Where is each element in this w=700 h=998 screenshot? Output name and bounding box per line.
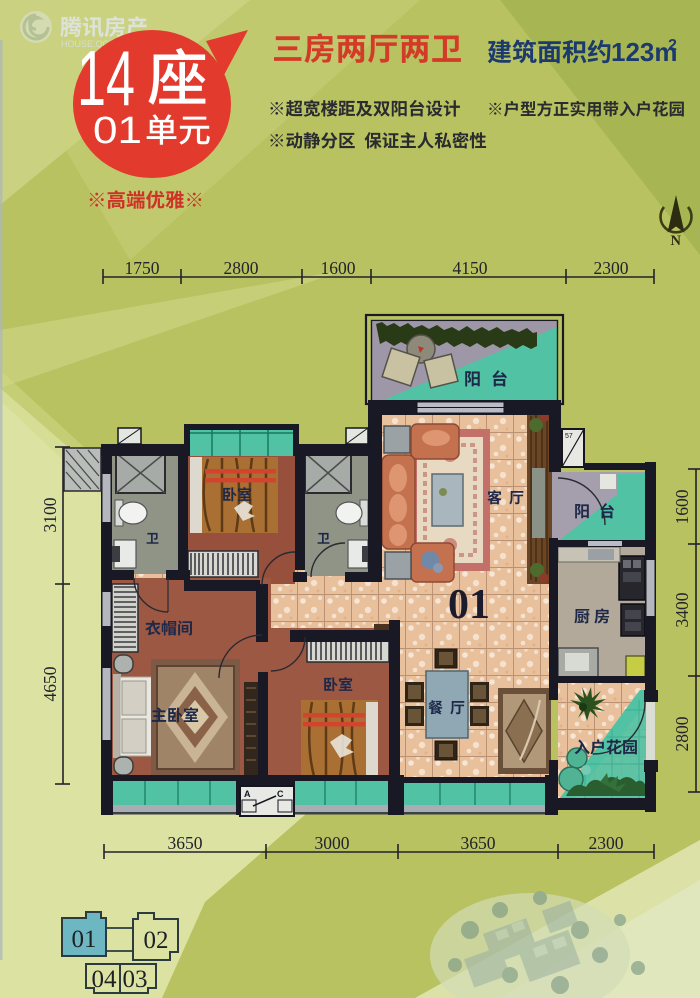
svg-text:01: 01 — [448, 582, 490, 628]
svg-text:04: 04 — [92, 966, 118, 993]
svg-text:4650: 4650 — [40, 666, 60, 701]
svg-text:01: 01 — [93, 110, 142, 152]
svg-text:A: A — [244, 789, 251, 799]
svg-text:3650: 3650 — [168, 833, 203, 853]
svg-text:2: 2 — [668, 37, 677, 54]
svg-text:C: C — [277, 789, 284, 799]
svg-text:3650: 3650 — [461, 833, 496, 853]
svg-text:14: 14 — [77, 34, 135, 122]
svg-text:2800: 2800 — [672, 716, 692, 751]
svg-text:1600: 1600 — [321, 258, 356, 278]
svg-text:02: 02 — [144, 927, 169, 954]
svg-text:57: 57 — [565, 433, 573, 440]
svg-text:1600: 1600 — [672, 489, 692, 524]
svg-text:3000: 3000 — [315, 833, 350, 853]
svg-text:3100: 3100 — [40, 497, 60, 532]
svg-text:03: 03 — [123, 966, 148, 993]
svg-text:2300: 2300 — [589, 833, 624, 853]
svg-text:4150: 4150 — [453, 258, 488, 278]
svg-text:3400: 3400 — [672, 592, 692, 627]
svg-text:2300: 2300 — [594, 258, 629, 278]
svg-text:2800: 2800 — [224, 258, 259, 278]
svg-text:1750: 1750 — [125, 258, 160, 278]
svg-text:01: 01 — [72, 926, 97, 953]
svg-text:N: N — [671, 233, 682, 249]
